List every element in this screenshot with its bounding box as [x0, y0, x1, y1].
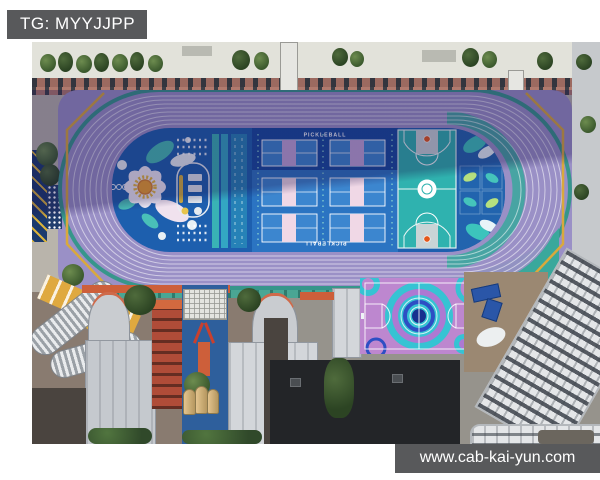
basketball-rim [424, 136, 430, 142]
tree [580, 116, 596, 133]
rooftop-structure [422, 50, 456, 62]
tree [332, 48, 348, 66]
tree-canopy [324, 358, 354, 418]
pickleball-label-top: PICKLEBALL [304, 133, 347, 139]
white-grid-canopy [183, 289, 227, 320]
rooftop-unit [392, 374, 403, 383]
tree [148, 55, 163, 72]
basketball-court-teal [398, 130, 456, 248]
tree [537, 52, 553, 70]
small-roof-edge [300, 292, 334, 300]
tree [574, 184, 589, 200]
tree [254, 52, 269, 70]
school-facade-upper [32, 78, 590, 87]
basketball-rim [424, 236, 430, 242]
orange-path [198, 342, 210, 376]
tree [462, 48, 479, 67]
small-roof [332, 288, 362, 358]
red-brick-building [152, 300, 182, 409]
tree [94, 53, 109, 72]
telegram-tag-label: TG: MYYJJPP [7, 10, 147, 39]
basketball-court-purple [360, 278, 478, 354]
rooftop-unit [290, 378, 301, 387]
tree [40, 54, 56, 72]
tree [112, 54, 128, 72]
tree [58, 52, 73, 72]
rooftop-structure [182, 46, 212, 56]
tree [130, 52, 144, 71]
running-track-and-infield: PICKLEBALL PICKLEBALL [32, 90, 600, 290]
tree [124, 285, 156, 315]
page: PICKLEBALL PICKLEBALL [0, 0, 600, 480]
tree [232, 50, 250, 70]
website-watermark: www.cab-kai-yun.com [395, 444, 600, 473]
pickleball-label-bottom: PICKLEBALL [304, 240, 347, 246]
hoop-mark [361, 313, 364, 319]
aerial-photo: PICKLEBALL PICKLEBALL [32, 42, 600, 444]
pickleball-zone: PICKLEBALL PICKLEBALL [252, 128, 398, 252]
tree [350, 51, 364, 67]
dark-rooftop [270, 360, 460, 444]
right-edge-buildings [572, 42, 600, 272]
tree [576, 54, 592, 70]
tan-arch [207, 389, 219, 414]
dark-alley [32, 388, 86, 444]
tree [482, 51, 497, 68]
hedge [182, 430, 262, 444]
debris-roof [538, 430, 594, 444]
tree [237, 288, 261, 312]
tree [76, 55, 92, 73]
hedge [88, 428, 152, 444]
